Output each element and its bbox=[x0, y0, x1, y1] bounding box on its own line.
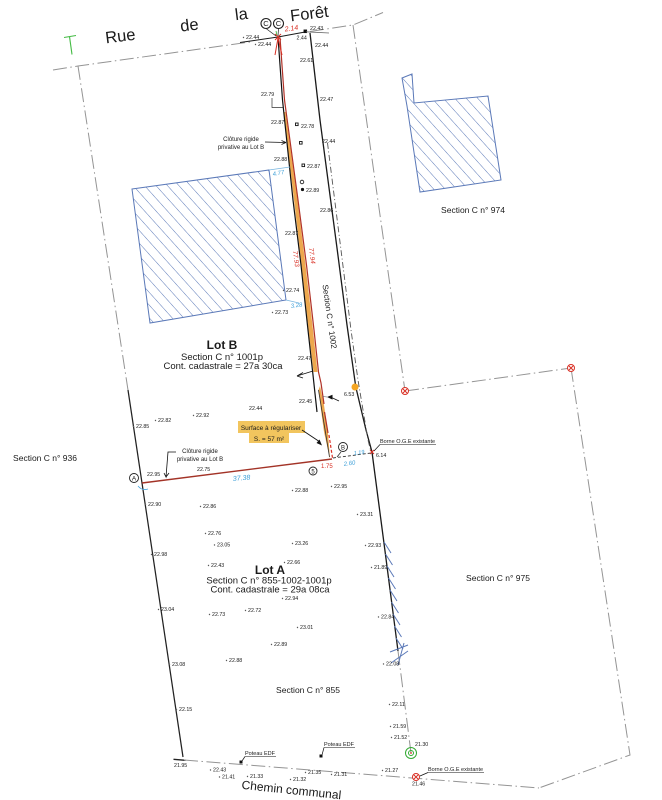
svg-text:22.88: 22.88 bbox=[295, 488, 308, 494]
svg-text:Section C n° 936: Section C n° 936 bbox=[13, 453, 77, 463]
svg-text:22.44: 22.44 bbox=[249, 406, 262, 412]
svg-text:Clôture rigide: Clôture rigide bbox=[182, 449, 218, 455]
svg-text:21.41: 21.41 bbox=[222, 775, 235, 781]
svg-text:22.87: 22.87 bbox=[285, 231, 298, 237]
svg-text:22.61: 22.61 bbox=[300, 58, 313, 64]
svg-text:22.08: 22.08 bbox=[386, 662, 399, 668]
svg-text:22.93: 22.93 bbox=[368, 543, 381, 549]
svg-text:21.89: 21.89 bbox=[374, 565, 387, 571]
svg-text:22.43: 22.43 bbox=[211, 563, 224, 569]
svg-text:21.46: 21.46 bbox=[412, 782, 425, 788]
svg-text:22.44: 22.44 bbox=[258, 42, 271, 48]
svg-text:de: de bbox=[179, 15, 199, 35]
svg-text:22.90: 22.90 bbox=[148, 502, 161, 508]
svg-text:21.33: 21.33 bbox=[250, 774, 263, 780]
svg-text:1.75: 1.75 bbox=[321, 464, 333, 470]
svg-text:Section C n° 975: Section C n° 975 bbox=[466, 573, 530, 583]
svg-text:Cont. cadastrale = 27a 30ca: Cont. cadastrale = 27a 30ca bbox=[163, 361, 283, 372]
svg-text:21.32: 21.32 bbox=[293, 777, 306, 783]
svg-text:C: C bbox=[276, 19, 282, 28]
svg-text:22.73: 22.73 bbox=[275, 310, 288, 316]
svg-text:21.30: 21.30 bbox=[415, 742, 428, 748]
svg-text:23.01: 23.01 bbox=[300, 625, 313, 631]
svg-text:S. = 57 m²: S. = 57 m² bbox=[254, 436, 285, 443]
svg-text:2.44: 2.44 bbox=[297, 36, 307, 42]
svg-text:22.47: 22.47 bbox=[320, 97, 333, 103]
svg-text:Surface à régulariser: Surface à régulariser bbox=[241, 425, 302, 432]
svg-text:22.86: 22.86 bbox=[203, 504, 216, 510]
svg-text:Clôture rigide: Clôture rigide bbox=[223, 137, 259, 143]
svg-text:22.66: 22.66 bbox=[287, 560, 300, 566]
svg-text:23.05: 23.05 bbox=[217, 543, 230, 549]
svg-text:23.08: 23.08 bbox=[172, 662, 185, 668]
svg-text:22.15: 22.15 bbox=[179, 707, 192, 713]
svg-text:22.76: 22.76 bbox=[208, 531, 221, 537]
svg-text:22.78: 22.78 bbox=[301, 124, 314, 130]
svg-text:22.44: 22.44 bbox=[246, 35, 259, 41]
svg-text:privative au Lot B: privative au Lot B bbox=[218, 145, 264, 151]
svg-text:21.59: 21.59 bbox=[393, 724, 406, 730]
svg-text:22.73: 22.73 bbox=[212, 612, 225, 618]
svg-text:22.74: 22.74 bbox=[286, 288, 299, 294]
svg-text:C: C bbox=[263, 19, 269, 28]
svg-text:22.85: 22.85 bbox=[136, 424, 149, 430]
svg-text:Poteau EDF: Poteau EDF bbox=[245, 751, 276, 757]
svg-text:22.45: 22.45 bbox=[299, 399, 312, 405]
svg-text:22.88: 22.88 bbox=[229, 658, 242, 664]
svg-text:22.95: 22.95 bbox=[334, 484, 347, 490]
svg-text:Cont. cadastrale = 29a 08ca: Cont. cadastrale = 29a 08ca bbox=[210, 585, 330, 596]
svg-text:Rue: Rue bbox=[104, 26, 136, 48]
svg-text:22.94: 22.94 bbox=[285, 596, 298, 602]
svg-text:21.52: 21.52 bbox=[394, 735, 407, 741]
svg-text:22.43: 22.43 bbox=[310, 26, 323, 32]
svg-text:23.31: 23.31 bbox=[360, 512, 373, 518]
svg-text:22.98: 22.98 bbox=[154, 552, 167, 558]
svg-text:21.31: 21.31 bbox=[334, 772, 347, 778]
svg-text:21.95: 21.95 bbox=[174, 763, 187, 769]
svg-text:22.79: 22.79 bbox=[261, 92, 274, 98]
svg-text:Borne O.G.E existante: Borne O.G.E existante bbox=[380, 439, 435, 445]
svg-text:Poteau EDF: Poteau EDF bbox=[324, 742, 355, 748]
svg-text:22.84: 22.84 bbox=[381, 615, 394, 621]
svg-text:22.44: 22.44 bbox=[315, 43, 328, 49]
svg-text:Borne O.G.E existante: Borne O.G.E existante bbox=[428, 767, 483, 773]
svg-text:Section C n° 855: Section C n° 855 bbox=[276, 685, 340, 695]
svg-text:22.75: 22.75 bbox=[197, 467, 210, 473]
svg-text:privative au Lot B: privative au Lot B bbox=[177, 457, 223, 463]
svg-text:22.92: 22.92 bbox=[196, 413, 209, 419]
svg-text:21.27: 21.27 bbox=[385, 768, 398, 774]
svg-text:A: A bbox=[132, 476, 137, 483]
svg-text:22.11: 22.11 bbox=[392, 702, 405, 708]
svg-text:22.82: 22.82 bbox=[158, 418, 171, 424]
svg-text:22.88: 22.88 bbox=[274, 157, 287, 163]
svg-text:22.95: 22.95 bbox=[147, 472, 160, 478]
svg-text:22.43: 22.43 bbox=[213, 768, 226, 774]
svg-text:B: B bbox=[341, 445, 345, 451]
svg-text:23.04: 23.04 bbox=[161, 607, 174, 613]
svg-text:22.89: 22.89 bbox=[306, 188, 319, 194]
svg-text:22.47: 22.47 bbox=[298, 356, 311, 362]
svg-text:22.86: 22.86 bbox=[320, 208, 333, 214]
svg-text:21.35: 21.35 bbox=[308, 770, 321, 776]
svg-text:22.44: 22.44 bbox=[322, 139, 335, 145]
svg-text:Section C n° 974: Section C n° 974 bbox=[441, 205, 505, 215]
svg-text:22.87: 22.87 bbox=[307, 164, 320, 170]
svg-text:6.53: 6.53 bbox=[344, 392, 354, 398]
svg-text:22.87: 22.87 bbox=[271, 120, 284, 126]
svg-text:22.89: 22.89 bbox=[274, 642, 287, 648]
svg-text:23.26: 23.26 bbox=[295, 541, 308, 547]
svg-text:Lot B: Lot B bbox=[207, 338, 238, 352]
svg-text:22.72: 22.72 bbox=[248, 608, 261, 614]
svg-text:6.14: 6.14 bbox=[376, 453, 386, 459]
